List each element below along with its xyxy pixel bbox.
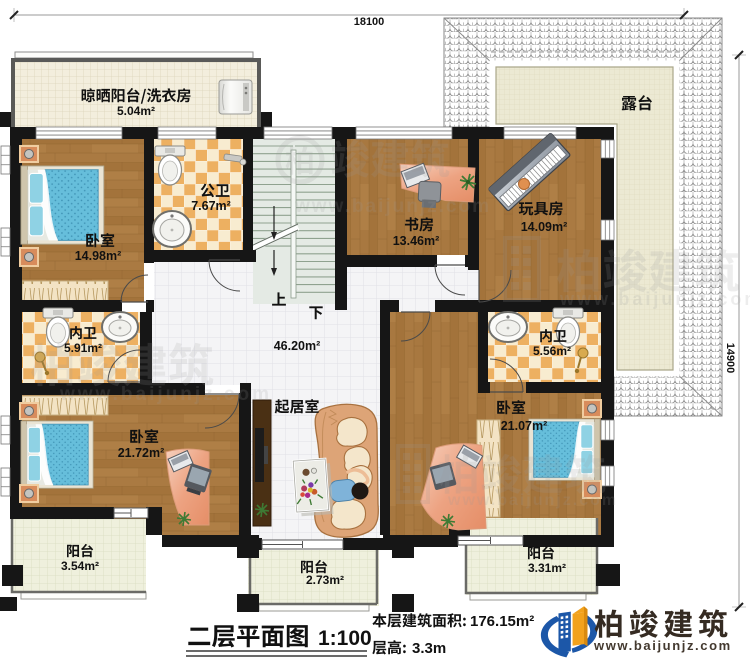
svg-text:www.baijunjz.com: www.baijunjz.com	[59, 384, 272, 405]
svg-text:46.20m²: 46.20m²	[274, 339, 321, 353]
svg-text:www.baijunjz.com: www.baijunjz.com	[593, 638, 732, 653]
svg-text:3.31m²: 3.31m²	[528, 561, 566, 575]
svg-text:21.07m²: 21.07m²	[501, 419, 548, 433]
svg-text:14.98m²: 14.98m²	[75, 249, 122, 263]
svg-text:21.72m²: 21.72m²	[118, 446, 165, 460]
svg-text:18100: 18100	[354, 16, 385, 28]
svg-text:5.91m²: 5.91m²	[64, 341, 102, 355]
svg-text:7.67m²: 7.67m²	[191, 199, 231, 213]
svg-text:176.15m²: 176.15m²	[470, 613, 534, 630]
svg-text:2.73m²: 2.73m²	[306, 573, 344, 587]
svg-text:www.baijunjz.com: www.baijunjz.com	[559, 289, 750, 309]
svg-text:www.baijunjz.com: www.baijunjz.com	[447, 492, 618, 509]
svg-text:www.baijunjz.com: www.baijunjz.com	[294, 196, 491, 217]
svg-text:14900: 14900	[724, 343, 736, 374]
svg-text:3.54m²: 3.54m²	[61, 559, 99, 573]
svg-text:5.04m²: 5.04m²	[117, 104, 155, 118]
svg-text:13.46m²: 13.46m²	[393, 234, 440, 248]
svg-text:1:100: 1:100	[318, 627, 372, 650]
svg-text:5.56m²: 5.56m²	[533, 344, 571, 358]
svg-text:14.09m²: 14.09m²	[521, 220, 568, 234]
svg-text:3.3m: 3.3m	[412, 640, 446, 657]
